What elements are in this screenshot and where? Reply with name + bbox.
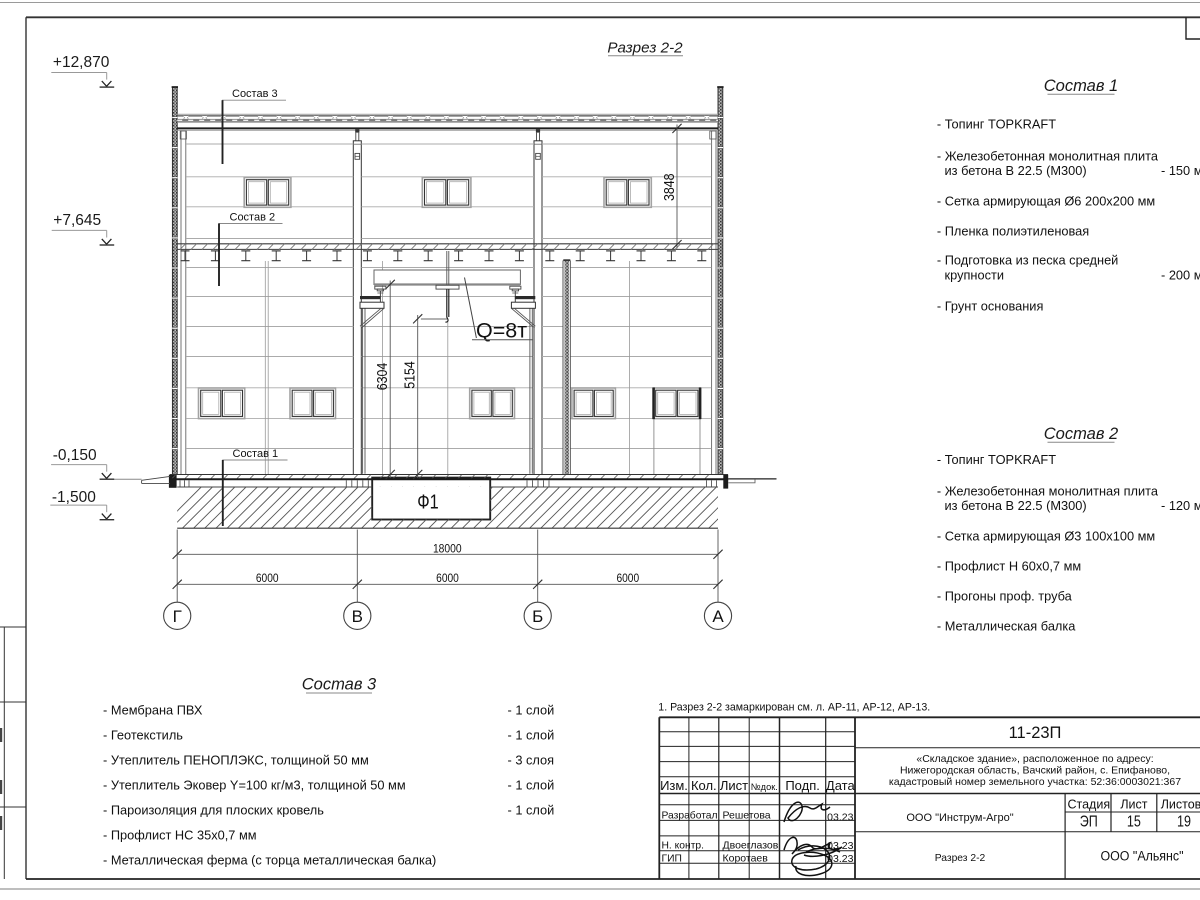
svg-text:- Подготовка из песка средней: - Подготовка из песка средней (937, 253, 1118, 268)
svg-text:03.23: 03.23 (827, 812, 853, 824)
svg-text:- 200 мм: - 200 мм (1161, 268, 1200, 283)
svg-text:Состав 3: Состав 3 (232, 88, 278, 100)
svg-text:- Металлическая балка: - Металлическая балка (937, 619, 1076, 634)
svg-text:- Железобетонная монолитная п: - Железобетонная монолитная плита (937, 484, 1159, 499)
svg-text:В: В (352, 607, 363, 626)
svg-text:- Утеплитель ПЕНОПЛЭКС, толщин: - Утеплитель ПЕНОПЛЭКС, толщиной 50 мм (103, 753, 369, 768)
svg-text:Разработал: Разработал (662, 810, 718, 822)
svg-text:Подп.: Подп. (785, 778, 820, 793)
svg-text:кадастровый номер земельного у: кадастровый номер земельного участка: 52… (889, 776, 1181, 788)
svg-text:«Складское здание», расположен: «Складское здание», расположенное по адр… (916, 753, 1153, 765)
svg-text:Решетова: Решетова (723, 810, 771, 822)
svg-text:Г: Г (173, 607, 182, 626)
svg-text:- Топинг TOPKRAFT: - Топинг TOPKRAFT (937, 117, 1056, 132)
svg-text:6000: 6000 (436, 571, 459, 585)
svg-text:Изм.: Изм. (660, 778, 688, 793)
svg-text:6304: 6304 (375, 363, 391, 391)
svg-text:- 1 слой: - 1 слой (508, 803, 555, 818)
svg-text:- Сетка армирующая Ø3 100х100: - Сетка армирующая Ø3 100х100 мм (937, 529, 1155, 544)
svg-text:Состав 2: Состав 2 (1044, 425, 1118, 443)
svg-text:3848: 3848 (662, 174, 678, 202)
svg-text:из бетона В 22.5 (М300): из бетона В 22.5 (М300) (945, 498, 1087, 513)
svg-text:Кол.: Кол. (691, 778, 717, 793)
svg-text:- Железобетонная монолитная п: - Железобетонная монолитная плита (937, 149, 1159, 164)
svg-text:11-23П: 11-23П (1009, 724, 1062, 742)
svg-text:- Топинг TOPKRAFT: - Топинг TOPKRAFT (937, 452, 1056, 467)
svg-text:крупности: крупности (945, 268, 1005, 283)
svg-text:- Пленка полиэтиленовая: - Пленка полиэтиленовая (937, 224, 1089, 239)
svg-text:Ф1: Ф1 (417, 492, 439, 514)
svg-text:ГИП: ГИП (662, 854, 682, 865)
svg-text:Н. контр.: Н. контр. (662, 841, 705, 852)
svg-text:- Прогоны проф. труба: - Прогоны проф. труба (937, 589, 1073, 604)
svg-text:5154: 5154 (403, 361, 419, 389)
svg-text:- 1 слой: - 1 слой (508, 703, 555, 718)
svg-text:- Грунт основания: - Грунт основания (937, 299, 1044, 314)
svg-text:Лист: Лист (1120, 798, 1147, 812)
svg-text:18000: 18000 (433, 542, 462, 556)
svg-text:Состав 1: Состав 1 (233, 448, 279, 460)
svg-text:- Геотекстиль: - Геотекстиль (103, 728, 183, 743)
svg-text:ООО "Инструм-Агро": ООО "Инструм-Агро" (906, 812, 1013, 824)
svg-text:1. Разрез 2-2 замаркирован см.: 1. Разрез 2-2 замаркирован см. л. АР-11,… (658, 702, 930, 714)
svg-text:- Профлист НС 35х0,7 мм: - Профлист НС 35х0,7 мм (103, 828, 257, 843)
svg-text:- 1 слой: - 1 слой (508, 778, 555, 793)
svg-text:Коротаев: Коротаев (723, 853, 769, 865)
svg-text:-1,500: -1,500 (52, 489, 96, 506)
svg-text:из бетона В 22.5 (М300): из бетона В 22.5 (М300) (945, 163, 1087, 178)
svg-text:Лист: Лист (720, 778, 748, 793)
svg-text:ООО "Альянс": ООО "Альянс" (1101, 848, 1184, 863)
svg-text:+7,645: +7,645 (53, 212, 101, 229)
svg-text:№док.: №док. (751, 782, 778, 793)
svg-text:- 150 мм: - 150 мм (1161, 163, 1200, 178)
svg-text:6000: 6000 (256, 571, 279, 585)
svg-text:15: 15 (1127, 814, 1141, 831)
svg-text:+12,870: +12,870 (53, 54, 110, 71)
svg-text:Листов: Листов (1161, 798, 1200, 812)
svg-text:Двоеглазов: Двоеглазов (723, 840, 779, 852)
svg-text:Б: Б (532, 607, 543, 626)
svg-text:- Профлист Н 60х0,7 мм: - Профлист Н 60х0,7 мм (937, 559, 1081, 574)
svg-text:Стадия: Стадия (1067, 798, 1110, 812)
svg-text:А: А (712, 607, 724, 626)
svg-text:Состав 1: Состав 1 (1044, 77, 1118, 95)
svg-text:ЭП: ЭП (1080, 814, 1098, 831)
svg-text:- Сетка армирующая Ø6 200х200: - Сетка армирующая Ø6 200х200 мм (937, 194, 1155, 209)
svg-text:- Металлическая ферма (с торца: - Металлическая ферма (с торца металличе… (103, 853, 436, 868)
svg-text:6000: 6000 (616, 571, 639, 585)
svg-text:- Утеплитель Эковер Y=100 кг/м: - Утеплитель Эковер Y=100 кг/м3, толщино… (103, 778, 406, 793)
svg-text:Разрез 2-2: Разрез 2-2 (607, 40, 683, 57)
svg-text:-0,150: -0,150 (53, 447, 97, 464)
svg-text:19: 19 (1177, 814, 1191, 831)
svg-text:Состав 2: Состав 2 (230, 212, 276, 224)
svg-text:Нижегородская область, Вачский: Нижегородская область, Вачский район, с.… (900, 765, 1170, 777)
svg-text:Состав 3: Состав 3 (302, 676, 377, 694)
svg-text:- 3 слоя: - 3 слоя (508, 753, 555, 768)
svg-text:- 1 слой: - 1 слой (508, 728, 555, 743)
svg-text:- Мембрана ПВХ: - Мембрана ПВХ (103, 703, 203, 718)
svg-text:Q=8т: Q=8т (476, 319, 527, 343)
svg-text:- Пароизоляция для плоских кро: - Пароизоляция для плоских кровель (103, 803, 324, 818)
svg-text:Разрез 2-2: Разрез 2-2 (935, 853, 986, 864)
svg-text:Дата: Дата (826, 778, 856, 793)
svg-text:- 120 мм: - 120 мм (1161, 498, 1200, 513)
